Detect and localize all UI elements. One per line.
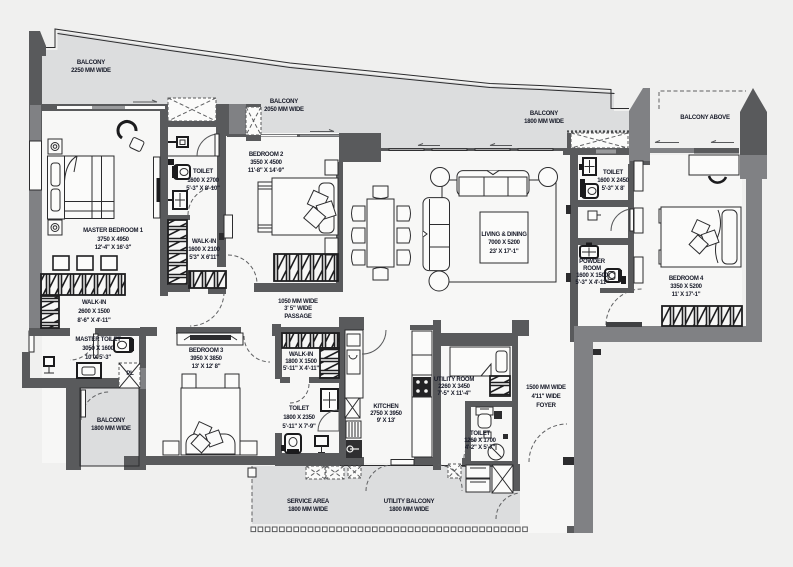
svg-text:11' X 17'-1": 11' X 17'-1" (672, 292, 701, 298)
svg-text:1500 MM WIDE: 1500 MM WIDE (526, 385, 566, 391)
svg-text:BALCONY ABOVE: BALCONY ABOVE (680, 115, 730, 121)
svg-text:5'-3" X 4'-11": 5'-3" X 4'-11" (575, 280, 609, 286)
svg-text:1800 MM WIDE: 1800 MM WIDE (524, 119, 564, 125)
svg-text:KITCHEN: KITCHEN (373, 404, 398, 410)
svg-text:13' X 12' 8": 13' X 12' 8" (192, 364, 221, 370)
svg-text:7000 X 5200: 7000 X 5200 (488, 240, 520, 246)
svg-text:TOILET: TOILET (603, 170, 623, 176)
svg-text:7'-5" X 11'-4": 7'-5" X 11'-4" (437, 391, 471, 397)
svg-text:5'3" X 6'11": 5'3" X 6'11" (189, 255, 219, 261)
svg-text:UTILITY ROOM: UTILITY ROOM (434, 377, 474, 383)
svg-text:2250 MM WIDE: 2250 MM WIDE (71, 68, 111, 74)
svg-text:1800 MM WIDE: 1800 MM WIDE (389, 507, 429, 513)
svg-text:10' X 5'-3": 10' X 5'-3" (85, 355, 111, 361)
svg-text:3350 X 5200: 3350 X 5200 (670, 284, 702, 290)
svg-text:5'-11" X 7'-9": 5'-11" X 7'-9" (282, 424, 316, 430)
svg-text:1800 MM WIDE: 1800 MM WIDE (91, 426, 131, 432)
svg-text:MASTER BEDROOM 1: MASTER BEDROOM 1 (83, 228, 144, 234)
svg-text:5'-3" X 8'-10": 5'-3" X 8'-10" (186, 186, 220, 192)
svg-text:23' X 17'-1": 23' X 17'-1" (489, 249, 518, 255)
svg-text:LIVING & DINING: LIVING & DINING (481, 232, 527, 238)
svg-text:BALCONY: BALCONY (530, 111, 558, 117)
svg-text:PL: PL (126, 371, 134, 377)
svg-text:3950 X 3850: 3950 X 3850 (190, 356, 222, 362)
svg-text:TOILET: TOILET (470, 431, 490, 437)
svg-text:BALCONY: BALCONY (270, 99, 298, 105)
svg-text:1600 X 2450: 1600 X 2450 (597, 178, 629, 184)
svg-text:1800 MM WIDE: 1800 MM WIDE (288, 507, 328, 513)
svg-text:1600 X 1500: 1600 X 1500 (576, 273, 608, 279)
svg-text:1600 X 2700: 1600 X 2700 (187, 178, 219, 184)
svg-text:3050 X 1600: 3050 X 1600 (82, 346, 114, 352)
svg-text:WALK-IN: WALK-IN (289, 352, 313, 358)
svg-text:2600 X 1500: 2600 X 1500 (78, 309, 110, 315)
svg-text:BALCONY: BALCONY (97, 418, 125, 424)
svg-text:TOILET: TOILET (289, 406, 309, 412)
svg-text:11'-8" X 14'-9": 11'-8" X 14'-9" (248, 168, 285, 174)
svg-text:2750 X 3950: 2750 X 3950 (370, 411, 402, 417)
svg-text:2050 MM WIDE: 2050 MM WIDE (264, 107, 304, 113)
svg-text:FOYER: FOYER (536, 403, 556, 409)
svg-text:TOILET: TOILET (193, 169, 213, 175)
svg-text:POWDER: POWDER (579, 259, 606, 265)
svg-text:1800 X 1500: 1800 X 1500 (285, 359, 317, 365)
svg-text:ROOM: ROOM (583, 266, 601, 272)
svg-text:BEDROOM 3: BEDROOM 3 (189, 348, 224, 354)
svg-text:SERVICE AREA: SERVICE AREA (287, 499, 330, 505)
svg-text:1800 X 2350: 1800 X 2350 (283, 415, 315, 421)
svg-text:1260 X 1700: 1260 X 1700 (464, 438, 496, 444)
svg-text:5'-3" X 8': 5'-3" X 8' (602, 186, 626, 192)
svg-text:1600 X 2100: 1600 X 2100 (188, 247, 220, 253)
svg-text:2260 X 3450: 2260 X 3450 (438, 384, 470, 390)
svg-text:3' 5" WIDE: 3' 5" WIDE (284, 306, 312, 312)
svg-text:BALCONY: BALCONY (77, 60, 105, 66)
svg-text:12'-4" X 16'-3": 12'-4" X 16'-3" (95, 245, 132, 251)
svg-text:9' X 13': 9' X 13' (377, 418, 396, 424)
svg-text:PASSAGE: PASSAGE (284, 314, 312, 320)
svg-text:3550 X 4500: 3550 X 4500 (250, 160, 282, 166)
svg-text:UTILITY BALCONY: UTILITY BALCONY (384, 499, 435, 505)
svg-text:5'-11" X 4'-11": 5'-11" X 4'-11" (283, 366, 319, 372)
svg-text:4'11" WIDE: 4'11" WIDE (531, 394, 560, 400)
svg-text:1050 MM WIDE: 1050 MM WIDE (278, 299, 318, 305)
svg-text:4'-2" X 5'-7": 4'-2" X 5'-7" (465, 445, 496, 451)
svg-text:WALK-IN: WALK-IN (82, 300, 106, 306)
svg-text:8'-6" X 4'-11": 8'-6" X 4'-11" (77, 318, 111, 324)
svg-text:BEDROOM 2: BEDROOM 2 (249, 152, 284, 158)
svg-text:BEDROOM 4: BEDROOM 4 (669, 276, 704, 282)
svg-text:3750 X 4950: 3750 X 4950 (97, 237, 129, 243)
svg-text:WALK-IN: WALK-IN (192, 239, 216, 245)
svg-text:MASTER TOILET: MASTER TOILET (75, 337, 121, 343)
